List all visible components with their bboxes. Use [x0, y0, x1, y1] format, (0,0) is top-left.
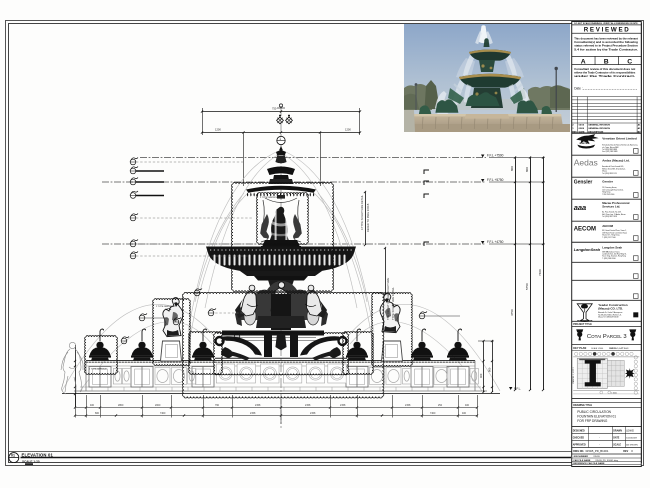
svg-text:7400: 7400	[430, 412, 436, 415]
svg-text:800: 800	[95, 412, 100, 415]
svg-text:750: 750	[272, 107, 277, 111]
svg-text:T 852.2529 8100: T 852.2529 8100	[602, 194, 614, 196]
svg-text:PARCEL 1, LOT 2 & 3: PARCEL 1, LOT 2 & 3	[609, 347, 628, 350]
svg-text:Hong Kong: Hong Kong	[602, 192, 610, 194]
svg-text:2158: 2158	[340, 404, 346, 407]
svg-text:PROJECT TITLE: PROJECT TITLE	[573, 323, 592, 326]
svg-text:LEAND: LEAND	[626, 429, 634, 432]
svg-text:800: 800	[510, 166, 514, 171]
svg-text:KEY PLAN: KEY PLAN	[573, 346, 586, 350]
svg-text:LangdonSeah: LangdonSeah	[574, 247, 601, 252]
svg-text:FOR FRP DRAWING: FOR FRP DRAWING	[577, 419, 608, 423]
svg-text:5.4 for action by the Trade Co: 5.4 for action by the Trade Contractor.	[574, 48, 638, 51]
svg-text:SCALE 1:25: SCALE 1:25	[22, 460, 40, 464]
svg-text:Fax: (853) 2882 8889: Fax: (853) 2882 8889	[602, 151, 617, 153]
svg-text:ELEVATION 01: ELEVATION 01	[22, 452, 54, 457]
svg-text:relieve the Trade Contractor o: relieve the Trade Contractor of its resp…	[574, 71, 636, 74]
svg-text:DRAWING TITLE: DRAWING TITLE	[573, 404, 592, 407]
svg-text:AECOM: AECOM	[602, 224, 613, 228]
svg-text:Tel: (853) 2882 8888: Tel: (853) 2882 8888	[602, 149, 617, 151]
svg-text:10/04/2009: 10/04/2009	[626, 437, 637, 439]
svg-text:400: 400	[465, 404, 470, 407]
svg-text:CAD FILE NAME: CAD FILE NAME	[573, 459, 591, 462]
svg-text:GENERAL REVISION: GENERAL REVISION	[588, 124, 610, 127]
svg-text:JOB NUMBER: JOB NUMBER	[573, 456, 588, 458]
svg-text:3151B_PD_B1001.dwg: 3151B_PD_B1001.dwg	[595, 460, 619, 462]
svg-text:Kwun Tong, Kowloon, Hong Kong: Kwun Tong, Kowloon, Hong Kong	[602, 256, 626, 258]
svg-text:VENETIAN: VENETIAN	[579, 142, 590, 145]
svg-text:400: 400	[479, 373, 483, 378]
svg-text:3 TYPE SERVICE: 3 TYPE SERVICE	[260, 197, 278, 199]
svg-text:F.F.L +5750: F.F.L +5750	[487, 178, 504, 182]
svg-text:2158: 2158	[250, 412, 256, 415]
svg-text:DO NOT SCALE DRAWINGS. VERIFY: DO NOT SCALE DRAWINGS. VERIFY ALL DIMENS…	[574, 22, 638, 25]
svg-text:AECOM: AECOM	[574, 227, 596, 233]
svg-text:SCALE 1:2000: SCALE 1:2000	[591, 347, 603, 350]
svg-text:C: C	[627, 58, 632, 65]
svg-text:400: 400	[90, 404, 95, 407]
svg-text:PARCEL 1, LOT 3: PARCEL 1, LOT 3	[572, 366, 575, 383]
svg-text:400: 400	[462, 412, 467, 415]
svg-text:3151B: 3151B	[593, 456, 600, 458]
svg-text:PUBLIC CIRCULATION: PUBLIC CIRCULATION	[577, 410, 611, 414]
svg-text:254: 254	[438, 404, 443, 407]
svg-text:(Macau) CO. LTD.: (Macau) CO. LTD.	[598, 307, 623, 311]
svg-text:REFERENCE CAD FILE NAME: REFERENCE CAD FILE NAME	[573, 462, 605, 465]
svg-text:T: (852) 2317 7000: T: (852) 2317 7000	[602, 237, 615, 239]
svg-text:DATE: DATE	[613, 436, 620, 439]
svg-text:Consultant review of this docu: Consultant review of this document does …	[574, 68, 635, 71]
svg-text:T: (852) 2830 3500: T: (852) 2830 3500	[602, 258, 615, 260]
svg-text:7400: 7400	[160, 412, 166, 415]
svg-text:F.F.L.: F.F.L.	[514, 387, 521, 391]
svg-text:Venetian Orient Limited: Venetian Orient Limited	[602, 137, 637, 141]
svg-text:FOUNTAIN ELEVATION 01: FOUNTAIN ELEVATION 01	[577, 414, 616, 418]
svg-text:aaa: aaa	[574, 203, 587, 212]
svg-text:2158: 2158	[305, 404, 311, 407]
svg-text:under the Trade Contract.: under the Trade Contract.	[574, 75, 636, 78]
svg-text:APPROVED: APPROVED	[573, 443, 586, 446]
svg-text:760: 760	[215, 404, 220, 407]
svg-text:TYPE SCULPTURE DETAIL: TYPE SCULPTURE DETAIL	[391, 287, 395, 320]
svg-text:Services Ltd.: Services Ltd.	[602, 205, 620, 209]
svg-text:1: 1	[279, 137, 281, 141]
svg-text:status referred to in Project: status referred to in Project Procedure …	[574, 45, 638, 48]
svg-text:2158: 2158	[405, 404, 411, 407]
svg-text:2/F, Dawning House,: 2/F, Dawning House,	[602, 187, 617, 189]
svg-text:Date :: Date :	[574, 86, 583, 90]
svg-text:SCALE: SCALE	[613, 443, 621, 446]
svg-text:F.F.L +4750: F.F.L +4750	[487, 240, 504, 244]
svg-text:Tel: (853) 2833 1113: Tel: (853) 2833 1113	[602, 173, 616, 175]
svg-text:A: A	[581, 58, 586, 65]
svg-text:Gensler: Gensler	[602, 180, 614, 184]
svg-text:B: B	[604, 58, 609, 65]
svg-text:1200: 1200	[215, 128, 221, 132]
svg-text:2158: 2158	[255, 404, 261, 407]
svg-text:01: 01	[11, 454, 15, 458]
svg-text:DESIGNED: DESIGNED	[573, 430, 585, 432]
svg-text:800: 800	[488, 367, 492, 372]
svg-text:Macau Tel: 00853-28755018: Macau Tel: 00853-28755018	[598, 317, 618, 319]
svg-text:7400: 7400	[538, 269, 542, 276]
svg-text:Langdon Seah: Langdon Seah	[602, 245, 622, 249]
svg-text:800: 800	[525, 167, 529, 172]
svg-text:3151B_PD_B1001: 3151B_PD_B1001	[585, 449, 609, 453]
svg-text:2158: 2158	[310, 412, 316, 415]
svg-text:GENERAL REVISION: GENERAL REVISION	[588, 127, 610, 130]
svg-text:DWG NO.: DWG NO.	[573, 450, 584, 453]
svg-text:1200: 1200	[345, 128, 351, 132]
svg-text:DRAWN: DRAWN	[613, 429, 622, 432]
svg-text:2 TYPE SERVICE: 2 TYPE SERVICE	[156, 306, 174, 308]
svg-text:Consultants(s) and is accorded: Consultants(s) and is accorded the follo…	[574, 41, 638, 44]
svg-text:2800: 2800	[118, 404, 124, 407]
svg-text:R E V I E W E D: R E V I E W E D	[584, 27, 630, 34]
svg-text:This document has been reviewe: This document has been reviewed by the r…	[574, 38, 638, 41]
svg-text:03/09: 03/09	[579, 128, 585, 130]
svg-text:AS SHOWN: AS SHOWN	[626, 443, 638, 446]
svg-text:REFER TO DWG 3151B: REFER TO DWG 3151B	[366, 203, 370, 232]
svg-text:REV: REV	[623, 450, 628, 453]
svg-text:2000: 2000	[155, 404, 161, 407]
svg-text:CHECKED: CHECKED	[573, 437, 585, 439]
svg-text:Macau: Macau	[602, 171, 607, 173]
svg-text:4 TYPE SCULPTURE DETAIL: 4 TYPE SCULPTURE DETAIL	[360, 195, 364, 230]
svg-text:05/10: 05/10	[579, 125, 585, 127]
svg-text:Aedas (Macau) Ltd.: Aedas (Macau) Ltd.	[602, 159, 630, 163]
svg-text:F.F.L +7500: F.F.L +7500	[487, 154, 504, 158]
svg-text:1 TYPE SERVICE: 1 TYPE SERVICE	[89, 369, 107, 371]
svg-text:Tel: (853) 2837 2628: Tel: (853) 2837 2628	[602, 216, 617, 218]
svg-text:4750: 4750	[510, 309, 514, 316]
svg-text:Gensler: Gensler	[574, 180, 593, 186]
svg-text:5750: 5750	[525, 283, 529, 290]
svg-text:THE HEIGHT OF THE SCULPTURE: THE HEIGHT OF THE SCULPTURE	[386, 277, 390, 320]
svg-text:Aedas: Aedas	[574, 158, 598, 168]
svg-text:1:1000: 1:1000	[611, 392, 617, 394]
